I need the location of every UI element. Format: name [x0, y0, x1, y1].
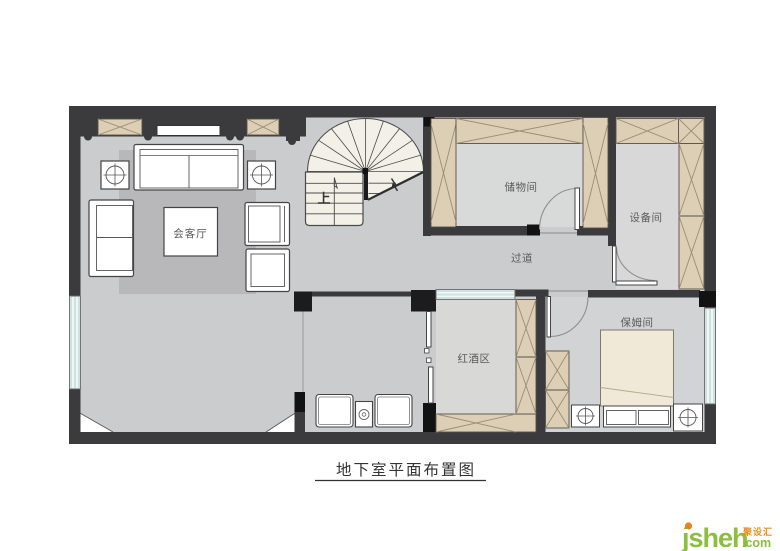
svg-text:红酒区: 红酒区	[458, 352, 491, 365]
svg-text:设备间: 设备间	[630, 211, 663, 224]
svg-text:上: 上	[317, 191, 330, 206]
svg-text:保姆间: 保姆间	[621, 316, 654, 329]
svg-text:储物间: 储物间	[505, 181, 538, 194]
svg-text:过道: 过道	[511, 252, 533, 265]
svg-text:地下室平面布置图: 地下室平面布置图	[336, 461, 476, 479]
svg-text:会客厅: 会客厅	[173, 227, 208, 240]
svg-text:.com: .com	[742, 536, 771, 550]
